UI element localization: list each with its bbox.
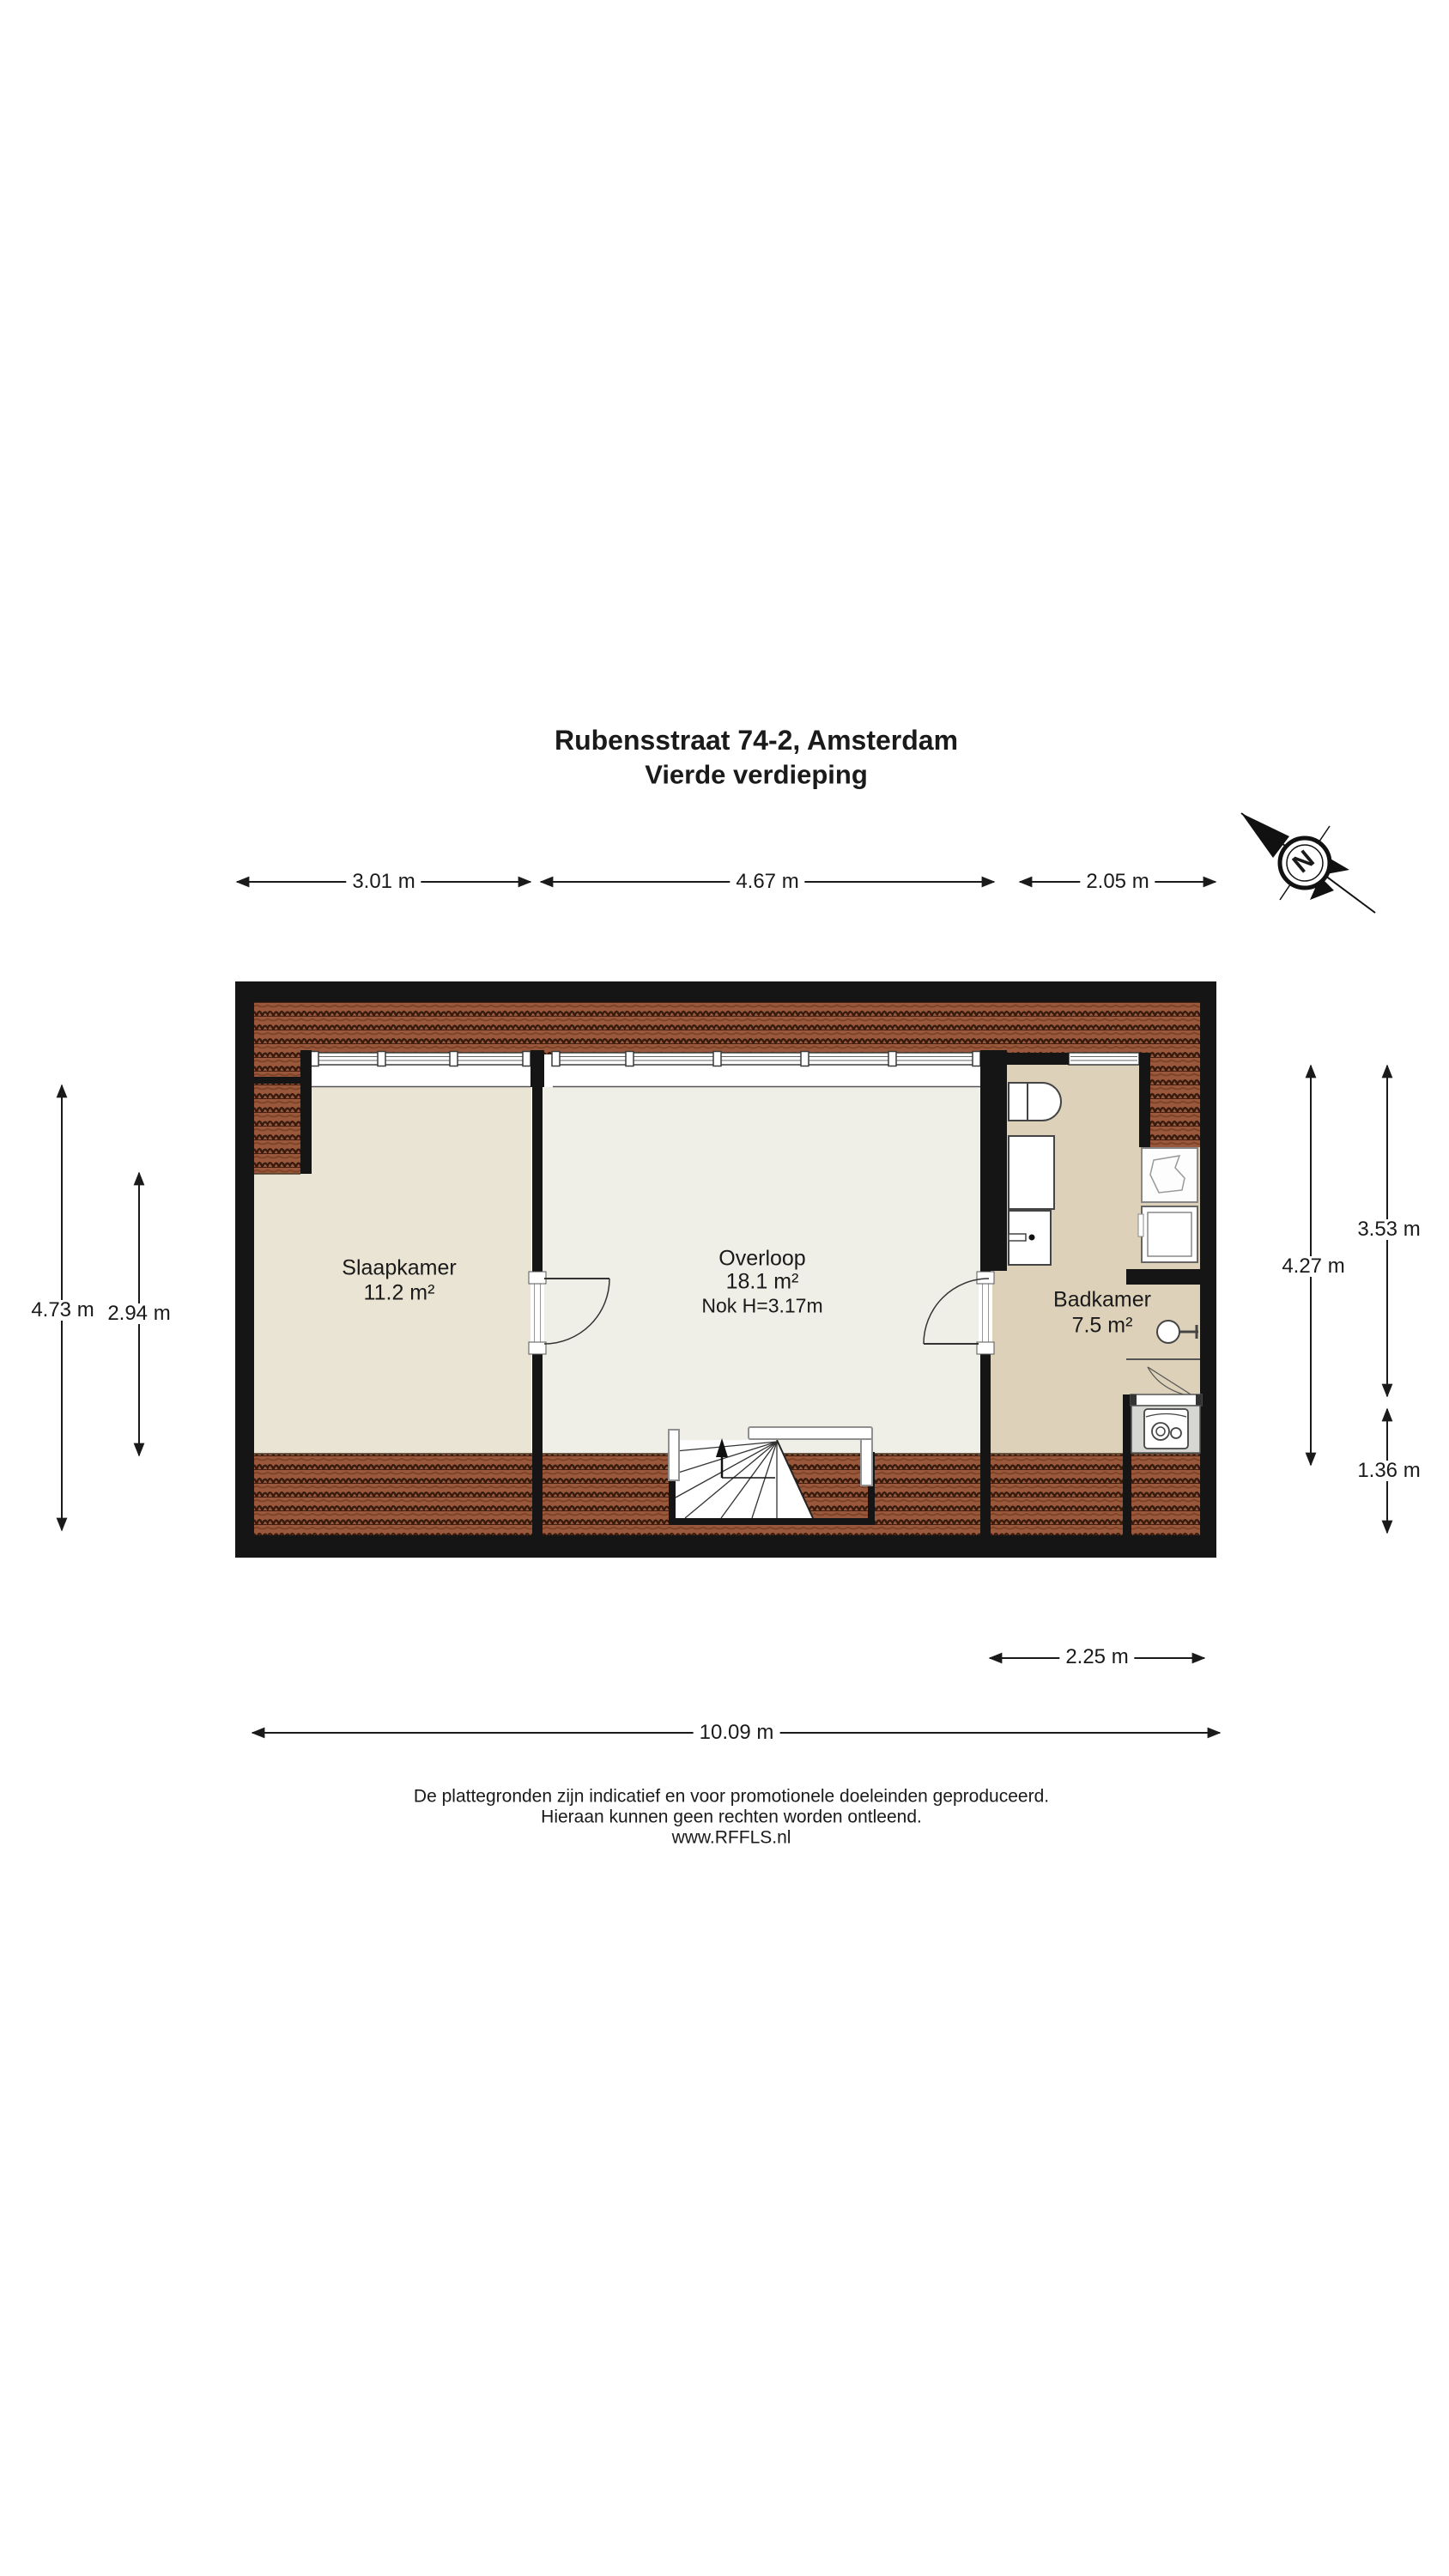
disclaimer-line-1: De plattegronden zijn indicatief en voor… [414,1788,1049,1806]
overloop-window [552,1052,980,1088]
slaapkamer-area: 11.2 m² [364,1283,435,1304]
dim-left-1: 4.73 m [25,1300,100,1321]
slaapkamer-label: Slaapkamer [342,1258,456,1279]
stair-railing [749,1427,872,1439]
dim-top-2: 4.67 m [730,872,804,892]
overloop-ridge-note: Nok H=3.17m [701,1297,822,1316]
page: { "title": { "line1": "Rubensstraat 74-2… [0,0,1449,2576]
dim-bottom-2: 10.09 m [694,1722,780,1743]
stair-railing-post [861,1439,872,1485]
washbasin [1009,1211,1051,1265]
overloop-area: 18.1 m² [726,1272,799,1293]
dim-top-3: 2.05 m [1080,872,1155,892]
dim-right-3: 1.36 m [1351,1461,1426,1481]
dim-top-1: 3.01 m [346,872,421,892]
slaapkamer-floor [254,1174,312,1454]
floorplan-canvas [0,0,1449,2576]
dim-right-2: 3.53 m [1351,1219,1426,1240]
disclaimer-line-3: www.RFFLS.nl [672,1829,791,1847]
overloop-label: Overloop [718,1249,805,1270]
dim-bottom-1: 2.25 m [1059,1647,1134,1668]
toilet [1009,1083,1061,1121]
stair-railing-post [669,1430,679,1480]
badkamer-label: Badkamer [1053,1290,1151,1311]
dim-left-2: 2.94 m [101,1303,176,1324]
page-title: Rubensstraat 74-2, Amsterdam [555,726,958,754]
shower [1009,1136,1054,1209]
badkamer-window [1069,1053,1139,1065]
slaapkamer-window [311,1052,530,1088]
disclaimer-line-2: Hieraan kunnen geen rechten worden ontle… [541,1808,922,1826]
badkamer-area: 7.5 m² [1072,1315,1133,1337]
page-subtitle: Vierde verdieping [645,762,868,788]
dim-right-1: 4.27 m [1276,1256,1350,1277]
